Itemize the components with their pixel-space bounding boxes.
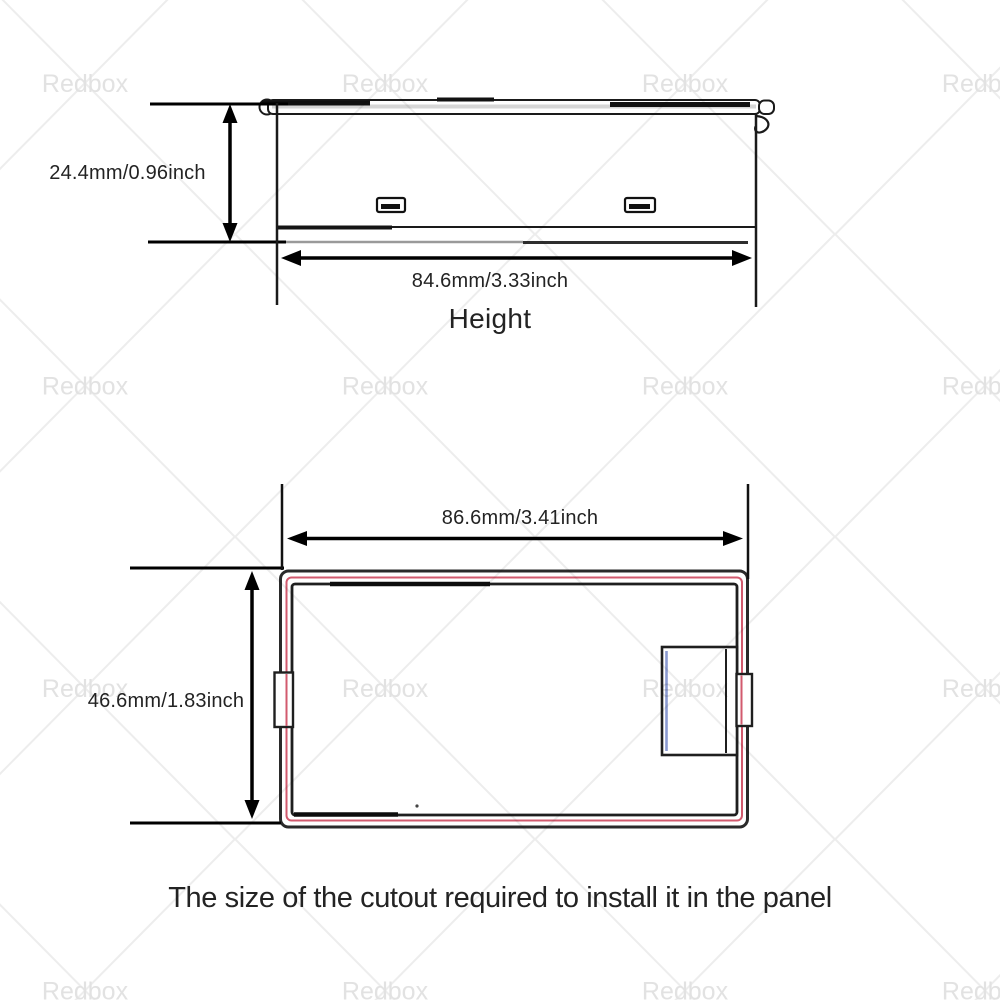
product-dimension-diagram: 24.4mm/0.96inch 84.6mm/3.33inch Height 8…: [0, 0, 1000, 1000]
flange-dark-segment-right: [610, 102, 750, 107]
flange-dark-segment-mid: [437, 98, 494, 102]
width-dimension-label-top: 84.6mm/3.33inch: [404, 270, 576, 293]
diagram-canvas: [0, 0, 1000, 1000]
view-title: Height: [420, 303, 560, 335]
body-bottom-dark-segment: [277, 226, 392, 230]
height-dimension-label-bottom: 46.6mm/1.83inch: [80, 690, 252, 713]
mounting-slot-right: [625, 198, 655, 212]
caption-text: The size of the cutout required to insta…: [0, 882, 1000, 915]
flange-right-cap: [759, 101, 774, 115]
height-dimension-arrow: [223, 104, 238, 242]
clip-tab-left: [275, 673, 294, 728]
speck: [415, 804, 418, 807]
clip-tab-right: [737, 674, 753, 726]
width-dimension-arrow-bottom: [287, 531, 743, 546]
height-dimension-label: 24.4mm/0.96inch: [40, 162, 215, 185]
connector-block: [662, 647, 737, 755]
panel-cutout-view: [275, 571, 753, 827]
width-dimension-label-bottom: 86.6mm/3.41inch: [434, 507, 606, 530]
mounting-slot-left: [377, 198, 405, 212]
width-dimension-arrow-top: [281, 250, 752, 266]
